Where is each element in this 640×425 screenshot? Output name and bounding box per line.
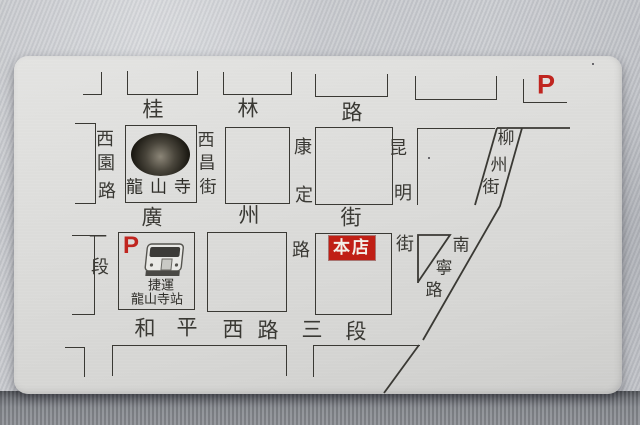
- nanning-char-1: 寧: [436, 261, 453, 278]
- city-block: [207, 232, 287, 312]
- dust-speck: [428, 157, 430, 159]
- heping-char-3: 路: [258, 321, 279, 342]
- parking-icon: P: [123, 234, 139, 258]
- nanning-char-2: 路: [426, 283, 443, 300]
- city-block-corner: [65, 347, 85, 377]
- city-block: [127, 71, 198, 95]
- city-block: [315, 74, 388, 97]
- kangding-char-2: 路: [292, 242, 310, 260]
- shop-badge: 本店: [329, 236, 375, 260]
- kangding-char-1: 定: [295, 187, 313, 205]
- city-block: [313, 345, 420, 377]
- guangzhou-char-0: 廣: [142, 208, 163, 229]
- xiyuan-section-char-0: 一: [89, 229, 107, 247]
- liuzhou-char-0: 柳: [498, 131, 515, 148]
- guilin-char-2: 路: [342, 103, 363, 124]
- station-label-line1: 捷運: [148, 280, 174, 293]
- city-block: [225, 127, 290, 204]
- guilin-char-0: 桂: [143, 100, 164, 121]
- station-label-line2: 龍山寺站: [131, 294, 183, 307]
- city-block: [223, 72, 292, 95]
- heping-char-5: 段: [346, 322, 367, 343]
- city-block: [415, 76, 497, 100]
- kunming-char-2: 街: [396, 236, 414, 254]
- nanning-char-0: 南: [453, 238, 470, 255]
- kunming-char-0: 昆: [389, 140, 407, 158]
- guilin-char-1: 林: [238, 99, 259, 120]
- temple-name-label: 龍山寺: [126, 180, 198, 197]
- xiyuan-section-char-1: 段: [91, 259, 109, 277]
- train-icon: [138, 241, 190, 279]
- heping-char-1: 平: [177, 318, 198, 339]
- heping-char-2: 西: [223, 320, 244, 341]
- xichang-char-0: 西: [198, 133, 215, 150]
- heping-char-0: 和: [135, 319, 156, 340]
- temple-photo: [131, 133, 190, 176]
- kunming-char-1: 明: [394, 185, 412, 203]
- photo-background: P 龍山寺 P 捷運 龍山寺站 本店: [0, 0, 640, 425]
- city-block: [112, 345, 287, 376]
- heping-char-4: 三: [302, 320, 323, 341]
- kangding-char-0: 康: [294, 139, 312, 157]
- city-block-corner: [83, 72, 102, 95]
- city-block-partial: [75, 123, 96, 204]
- xiyuan-char-2: 路: [98, 183, 116, 201]
- liuzhou-char-1: 州: [491, 158, 508, 175]
- xichang-char-1: 昌: [199, 156, 216, 173]
- parking-icon: P: [537, 72, 555, 99]
- xiyuan-char-0: 西: [96, 131, 114, 149]
- xichang-char-2: 街: [200, 180, 217, 197]
- xiyuan-char-1: 園: [97, 155, 115, 173]
- city-block: [315, 127, 393, 205]
- guangzhou-char-1: 州: [239, 206, 260, 227]
- liuzhou-char-2: 街: [483, 180, 500, 197]
- map: P 龍山寺 P 捷運 龍山寺站 本店: [0, 0, 640, 425]
- guangzhou-char-2: 街: [341, 208, 362, 229]
- dust-speck: [592, 63, 594, 65]
